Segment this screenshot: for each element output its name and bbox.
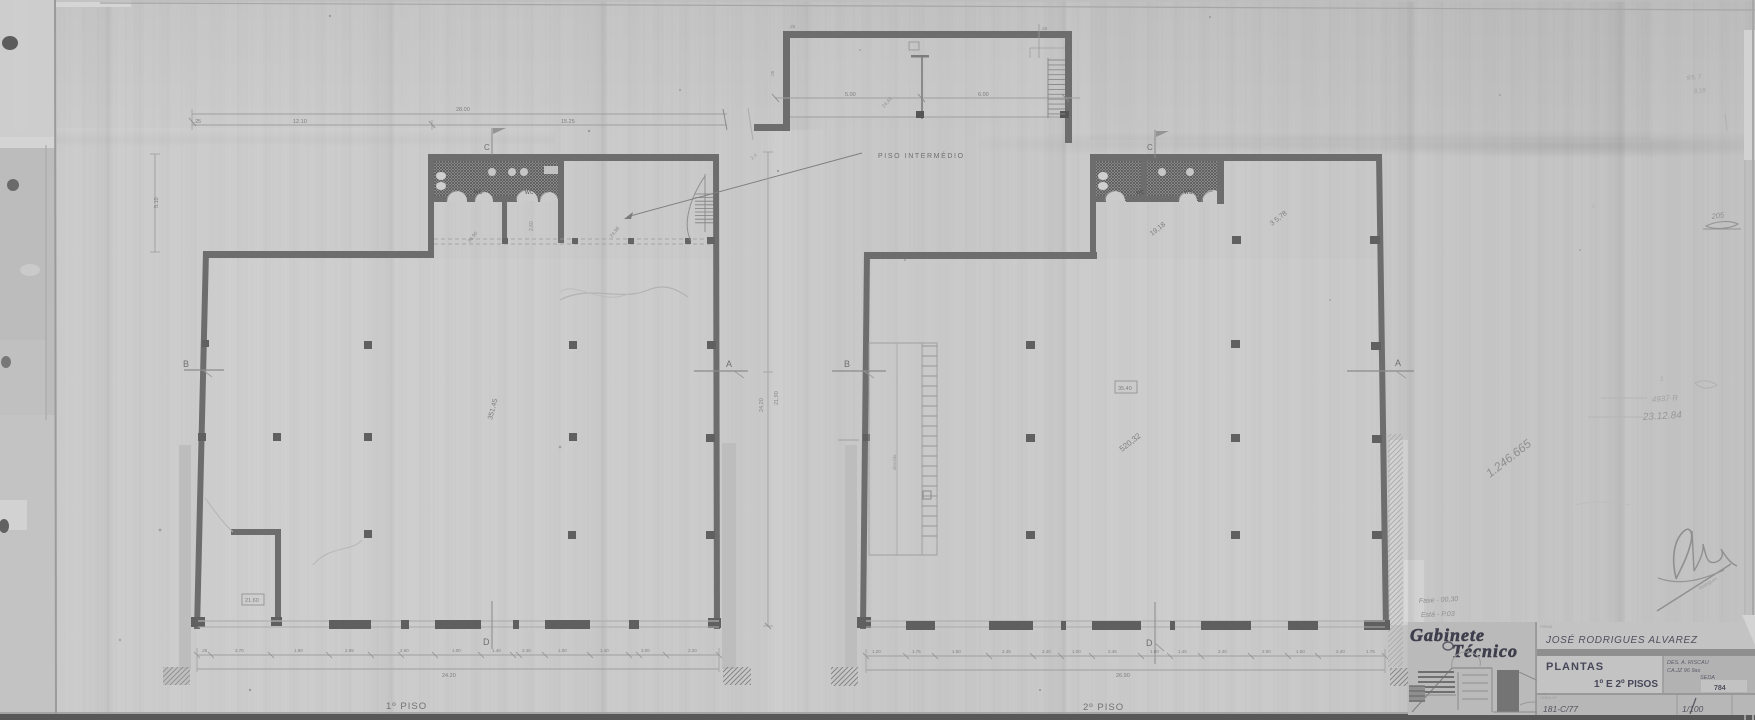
svg-text:PLANTAS: PLANTAS bbox=[1546, 661, 1604, 673]
svg-text:PISO INTERMÉDIO: PISO INTERMÉDIO bbox=[878, 151, 965, 160]
svg-text:1.50: 1.50 bbox=[1296, 649, 1305, 654]
svg-text:1.90: 1.90 bbox=[294, 648, 303, 653]
svg-text:1.00: 1.00 bbox=[1150, 649, 1159, 654]
svg-text:2.60: 2.60 bbox=[400, 648, 409, 653]
svg-text:Técnico: Técnico bbox=[1452, 641, 1518, 661]
svg-text:2.4: 2.4 bbox=[749, 152, 758, 161]
svg-text:28.00: 28.00 bbox=[456, 107, 470, 113]
svg-text:35.40: 35.40 bbox=[1118, 386, 1132, 392]
svg-text:B: B bbox=[183, 359, 189, 369]
svg-text:2,60: 2,60 bbox=[529, 221, 535, 231]
svg-text:D: D bbox=[483, 637, 490, 647]
svg-text:1.75: 1.75 bbox=[912, 649, 921, 654]
svg-text:2.40: 2.40 bbox=[1042, 649, 1051, 654]
svg-text:24,20: 24,20 bbox=[759, 398, 765, 412]
svg-text:4937·R: 4937·R bbox=[1652, 393, 1679, 404]
svg-text:3: 3 bbox=[1660, 377, 1664, 383]
svg-text:5'5, 7: 5'5, 7 bbox=[1687, 74, 1703, 82]
svg-text:1.40: 1.40 bbox=[600, 648, 609, 653]
svg-text:A: A bbox=[726, 359, 732, 369]
svg-text:1º PISO: 1º PISO bbox=[386, 701, 427, 712]
svg-text:Está - P.03: Está - P.03 bbox=[1421, 611, 1455, 619]
svg-text:1.40: 1.40 bbox=[492, 648, 501, 653]
svg-text:784: 784 bbox=[1714, 685, 1726, 692]
svg-text:19,18: 19,18 bbox=[1149, 221, 1167, 237]
svg-text:OBRA Nº: OBRA Nº bbox=[1540, 695, 1557, 700]
svg-text:3.70: 3.70 bbox=[235, 648, 244, 653]
svg-text:WC: WC bbox=[525, 190, 534, 196]
svg-text:23.12.84: 23.12.84 bbox=[1642, 410, 1683, 423]
svg-text:1º E 2º PISOS: 1º E 2º PISOS bbox=[1594, 679, 1658, 690]
svg-text:FIRMA: FIRMA bbox=[1540, 624, 1553, 629]
svg-text:21,90: 21,90 bbox=[774, 391, 780, 405]
svg-text:5.00: 5.00 bbox=[845, 92, 856, 98]
svg-text:.25: .25 bbox=[201, 648, 208, 653]
svg-text:CA.JZ 96 9as: CA.JZ 96 9as bbox=[1667, 668, 1701, 674]
svg-text:1.50: 1.50 bbox=[952, 649, 961, 654]
svg-text:2.40: 2.40 bbox=[1218, 649, 1227, 654]
svg-text:351,45: 351,45 bbox=[487, 398, 499, 421]
svg-text:A: A bbox=[1395, 358, 1401, 368]
svg-text:descida: descida bbox=[892, 454, 897, 470]
svg-text:2.45: 2.45 bbox=[522, 648, 531, 653]
svg-text:Fase - 00,30: Fase - 00,30 bbox=[1419, 596, 1459, 605]
svg-text:1.00: 1.00 bbox=[452, 648, 461, 653]
svg-text:1.00: 1.00 bbox=[558, 648, 567, 653]
svg-text:C: C bbox=[1147, 143, 1153, 152]
svg-text:1.20: 1.20 bbox=[872, 649, 881, 654]
svg-text:21.60: 21.60 bbox=[245, 598, 259, 604]
svg-text:1.246.665: 1.246.665 bbox=[1483, 436, 1534, 480]
svg-text:3: 3 bbox=[1592, 204, 1595, 210]
svg-text:15.25: 15.25 bbox=[561, 119, 575, 125]
svg-text:2.40: 2.40 bbox=[1336, 649, 1345, 654]
svg-text:2º PISO: 2º PISO bbox=[1083, 702, 1124, 713]
svg-text:D: D bbox=[1146, 638, 1153, 648]
svg-text:3 5,78: 3 5,78 bbox=[1269, 210, 1289, 228]
svg-text:C: C bbox=[484, 143, 490, 152]
svg-text:2.85: 2.85 bbox=[345, 648, 354, 653]
svg-text:WC: WC bbox=[474, 190, 483, 196]
svg-text:8.18: 8.18 bbox=[1694, 88, 1707, 95]
svg-text:12.10: 12.10 bbox=[293, 119, 307, 125]
svg-text:2.20: 2.20 bbox=[688, 648, 697, 653]
svg-text:3.00: 3.00 bbox=[641, 648, 650, 653]
svg-text:26.90: 26.90 bbox=[1116, 673, 1130, 679]
svg-text:DES. A. RISCAU: DES. A. RISCAU bbox=[1667, 660, 1709, 666]
svg-text:.25: .25 bbox=[770, 70, 775, 77]
svg-text:B: B bbox=[844, 359, 850, 369]
svg-text:.25: .25 bbox=[1041, 26, 1048, 31]
svg-text:JOSÉ RODRIGUES ALVAREZ: JOSÉ RODRIGUES ALVAREZ bbox=[1545, 633, 1698, 646]
svg-text:1.00: 1.00 bbox=[1072, 649, 1081, 654]
svg-text:181-C/77: 181-C/77 bbox=[1543, 704, 1578, 714]
svg-text:6.00: 6.00 bbox=[978, 92, 989, 98]
svg-text:1.40: 1.40 bbox=[1178, 649, 1187, 654]
svg-text:24,98: 24,98 bbox=[609, 226, 622, 240]
svg-text:5.10: 5.10 bbox=[154, 197, 160, 208]
svg-text:2.00: 2.00 bbox=[1262, 649, 1271, 654]
svg-text:1.75: 1.75 bbox=[1366, 649, 1375, 654]
svg-text:520,32: 520,32 bbox=[1118, 431, 1143, 453]
svg-text:24.20: 24.20 bbox=[442, 673, 456, 679]
svg-text:2.45: 2.45 bbox=[1002, 649, 1011, 654]
svg-text:205: 205 bbox=[1710, 210, 1725, 221]
svg-text:36,90: 36,90 bbox=[467, 231, 480, 245]
svg-text:.25: .25 bbox=[789, 24, 796, 29]
svg-text:WC: WC bbox=[1184, 190, 1193, 196]
svg-text:2.45: 2.45 bbox=[1108, 649, 1117, 654]
svg-text:WC: WC bbox=[1136, 190, 1145, 196]
svg-text:.25: .25 bbox=[194, 119, 201, 125]
